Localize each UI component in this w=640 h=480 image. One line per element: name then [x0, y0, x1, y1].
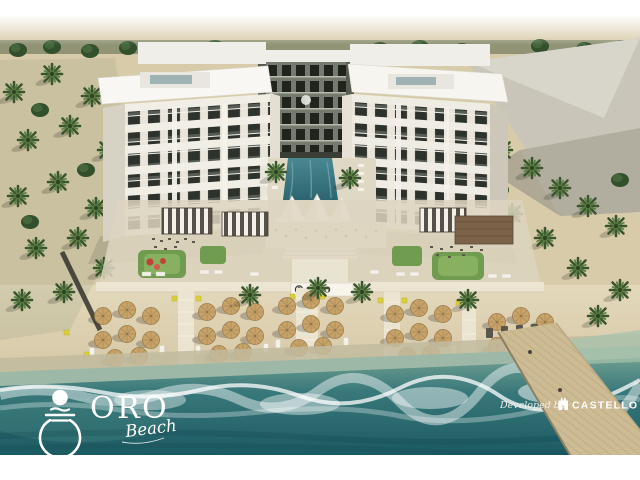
striped-pergola	[162, 208, 212, 234]
top-margin	[0, 0, 640, 15]
resort-aerial-rendering: ORO	[0, 0, 640, 480]
left-rear-roof	[138, 42, 266, 64]
rendering-canvas: ORO	[0, 0, 640, 480]
wood-pergola	[455, 216, 513, 244]
facade-logo-medallion	[301, 95, 311, 105]
developer-name: CASTELLO	[572, 400, 638, 412]
developer-prefix: Developed by	[499, 400, 566, 411]
bottom-margin	[0, 455, 640, 480]
right-rear-roof	[350, 44, 490, 66]
striped-pergola	[222, 212, 268, 236]
